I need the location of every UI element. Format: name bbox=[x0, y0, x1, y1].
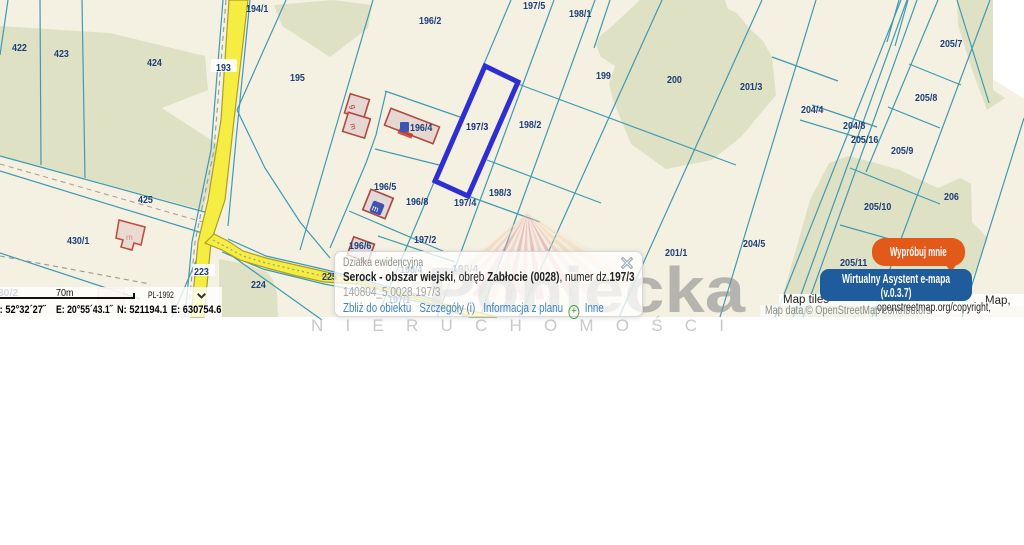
svg-text:422: 422 bbox=[12, 42, 27, 54]
svg-text:193: 193 bbox=[216, 62, 231, 74]
svg-text:204/5: 204/5 bbox=[743, 238, 765, 250]
svg-text:197/2: 197/2 bbox=[414, 234, 436, 246]
svg-text:196/4: 196/4 bbox=[410, 122, 432, 134]
svg-text:206: 206 bbox=[944, 191, 959, 203]
svg-text:195: 195 bbox=[290, 72, 305, 84]
svg-text:205/16: 205/16 bbox=[851, 134, 878, 146]
svg-text:197/4: 197/4 bbox=[454, 197, 476, 209]
svg-text:205/10: 205/10 bbox=[864, 201, 891, 213]
svg-text:424: 424 bbox=[147, 57, 162, 69]
svg-text:197/3: 197/3 bbox=[466, 121, 488, 133]
svg-text:425: 425 bbox=[138, 194, 153, 206]
svg-text:198/2: 198/2 bbox=[519, 119, 541, 131]
svg-text:200: 200 bbox=[667, 74, 682, 86]
svg-text:223: 223 bbox=[194, 266, 209, 278]
svg-text:205/9: 205/9 bbox=[891, 145, 913, 157]
svg-text:196/8: 196/8 bbox=[406, 196, 428, 208]
svg-text:m: m bbox=[126, 233, 133, 242]
svg-text:196/5: 196/5 bbox=[374, 181, 396, 193]
svg-text:423: 423 bbox=[54, 48, 69, 60]
svg-text:197/5: 197/5 bbox=[523, 0, 545, 12]
svg-text:224: 224 bbox=[251, 279, 266, 291]
svg-text:201/3: 201/3 bbox=[740, 81, 762, 93]
svg-text:196/2: 196/2 bbox=[419, 15, 441, 27]
svg-text:204/4: 204/4 bbox=[801, 104, 823, 116]
svg-text:198/1: 198/1 bbox=[569, 8, 591, 20]
svg-text:205/7: 205/7 bbox=[940, 38, 962, 50]
svg-text:194/1: 194/1 bbox=[246, 3, 268, 15]
svg-text:204/8: 204/8 bbox=[843, 120, 865, 132]
svg-text:199: 199 bbox=[596, 70, 611, 82]
svg-text:205/8: 205/8 bbox=[915, 92, 937, 104]
svg-text:205/11: 205/11 bbox=[840, 257, 867, 269]
svg-text:430/1: 430/1 bbox=[67, 235, 89, 247]
svg-text:198/3: 198/3 bbox=[489, 187, 511, 199]
